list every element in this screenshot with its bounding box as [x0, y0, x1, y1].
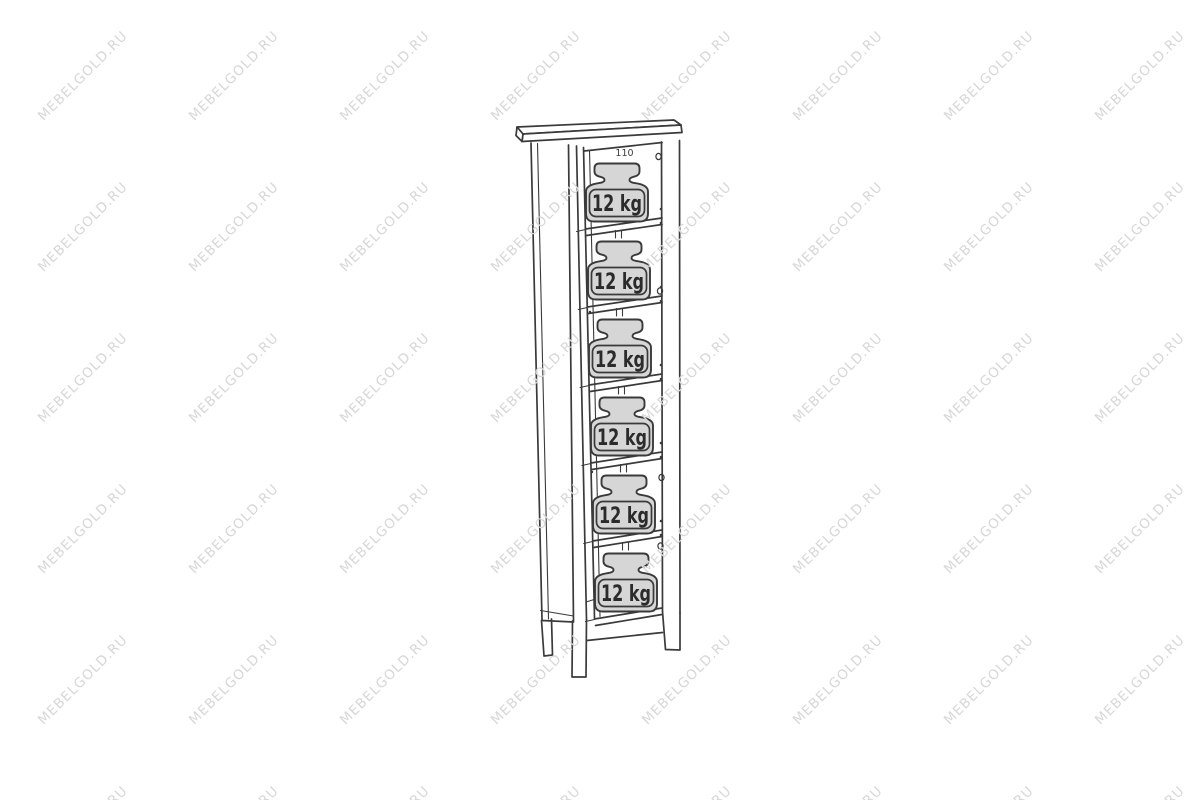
cabinet-top-panel [516, 120, 682, 142]
max-load-value: 12 kg [592, 192, 642, 217]
max-load-weight-icon: 12 kg [589, 320, 651, 378]
max-load-weight-icon: 12 kg [586, 164, 648, 222]
dimension-label: 110 [615, 148, 633, 159]
pin-mark [660, 222, 663, 225]
max-load-value: 12 kg [597, 426, 647, 451]
max-load-value: 12 kg [595, 348, 645, 373]
pin-mark [660, 534, 663, 537]
pin-mark [660, 378, 663, 381]
max-load-value: 12 kg [601, 582, 651, 607]
back-panel-seam [623, 543, 629, 551]
pin-mark [660, 520, 663, 523]
product-image-page: 12 kg12 kg12 kg12 kg12 kg12 kg 110 MEBEL… [0, 0, 1200, 800]
pin-mark [660, 208, 663, 211]
max-load-weight-icon: 12 kg [593, 476, 655, 534]
max-load-weight-icon: 12 kg [591, 398, 653, 456]
shelving-unit-line-drawing: 12 kg12 kg12 kg12 kg12 kg12 kg 110 [0, 0, 1200, 800]
pin-mark [660, 300, 663, 303]
pin-mark [589, 311, 591, 313]
pin-mark [591, 471, 593, 473]
max-load-value: 12 kg [599, 504, 649, 529]
max-load-weight-icon: 12 kg [588, 242, 650, 300]
max-load-value: 12 kg [594, 270, 644, 295]
shelf-pin-hole [656, 153, 661, 159]
pin-mark [660, 286, 663, 289]
pin-mark [660, 442, 663, 445]
max-load-weight-icon: 12 kg [595, 554, 657, 612]
pin-mark [660, 364, 663, 367]
pin-mark [660, 456, 663, 459]
